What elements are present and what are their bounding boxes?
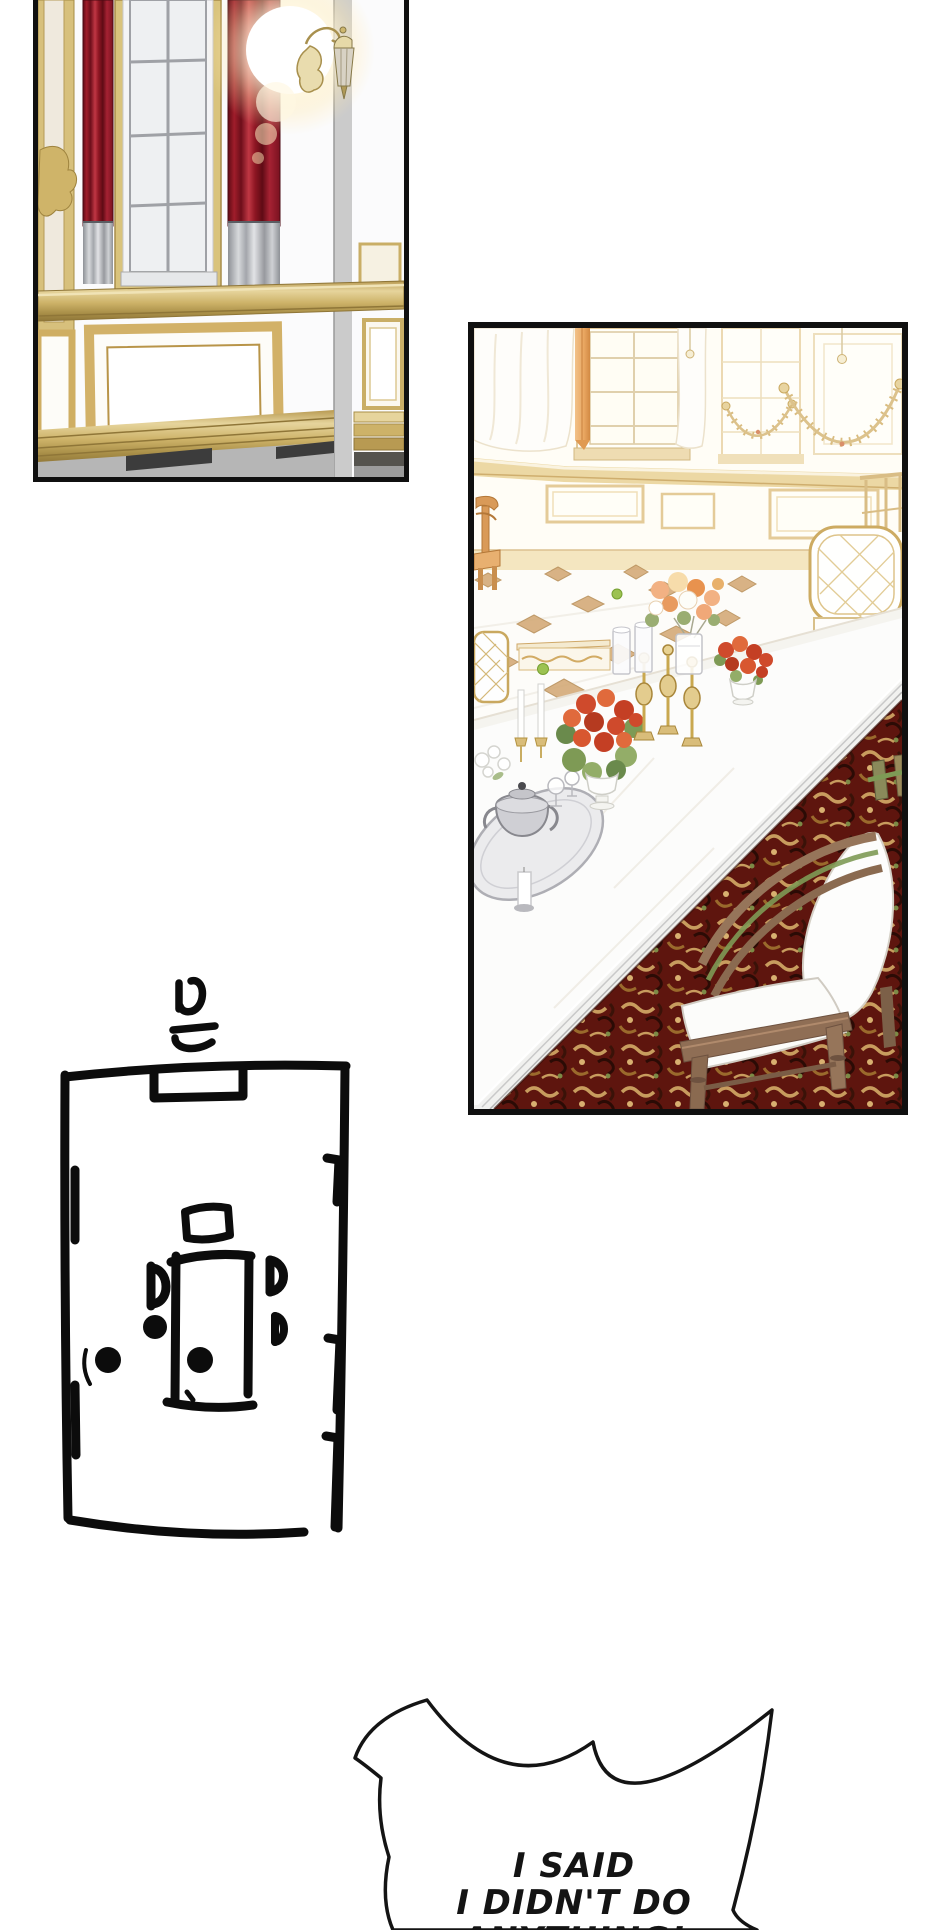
window-sill <box>121 272 217 286</box>
tufted-chair-left <box>474 632 508 702</box>
plan-table <box>167 1254 253 1407</box>
plan-window-mark-right-1 <box>327 1158 339 1202</box>
red-curtain-left <box>83 0 113 284</box>
comic-page: I SAID I DIDN'T DO ANYTHING! <box>0 0 940 1930</box>
plan-sideboard <box>185 1207 230 1240</box>
plan-small-flick <box>84 1350 90 1384</box>
plan-wall-bottom <box>70 1520 304 1534</box>
sheer-curtain-left <box>474 328 574 451</box>
plan-seat-dots <box>95 1315 213 1373</box>
window-sill <box>574 448 690 460</box>
green-apple <box>538 664 549 675</box>
window-left <box>574 328 690 460</box>
plan-small-tick <box>187 1392 193 1400</box>
buffet-console <box>517 640 610 675</box>
plan-chair-left <box>151 1266 166 1306</box>
plan-window-mark-right-3 <box>326 1436 338 1527</box>
speech-line-3: ANYTHING! <box>374 1922 774 1930</box>
tall-window <box>115 0 221 290</box>
speech-text: I SAID I DIDN'T DO ANYTHING! <box>374 1848 774 1930</box>
plan-chair-right-1 <box>270 1260 284 1292</box>
palace-wall-art <box>38 0 404 477</box>
speech-line-2: I DIDN'T DO <box>374 1885 774 1922</box>
plan-chair-right-2 <box>275 1316 284 1342</box>
gilded-mirror <box>38 0 77 330</box>
plan-window-mark-right-2 <box>328 1338 340 1410</box>
hangul-doodle-art <box>165 945 223 1053</box>
panel-palace-wall <box>33 0 409 482</box>
glass-vase <box>676 634 702 674</box>
dining-room-art <box>474 328 902 1109</box>
green-apple-on-floor <box>612 589 622 599</box>
plan-door-notch <box>154 1070 243 1098</box>
hangul-doodle <box>165 945 223 1053</box>
floor-plan-art <box>50 1050 360 1550</box>
floor-plan-sketch <box>50 1050 360 1550</box>
plan-wall-left <box>65 1075 68 1518</box>
sheer-curtain-right <box>676 328 706 448</box>
window-sill <box>718 454 804 464</box>
speech-bubble: I SAID I DIDN'T DO ANYTHING! <box>330 1690 800 1930</box>
plan-wall-top <box>65 1065 346 1077</box>
orange-curtain <box>575 328 590 450</box>
speech-line-1: I SAID <box>374 1848 774 1885</box>
panel-dining-room <box>468 322 908 1115</box>
plan-window-mark-left-2 <box>75 1385 76 1455</box>
